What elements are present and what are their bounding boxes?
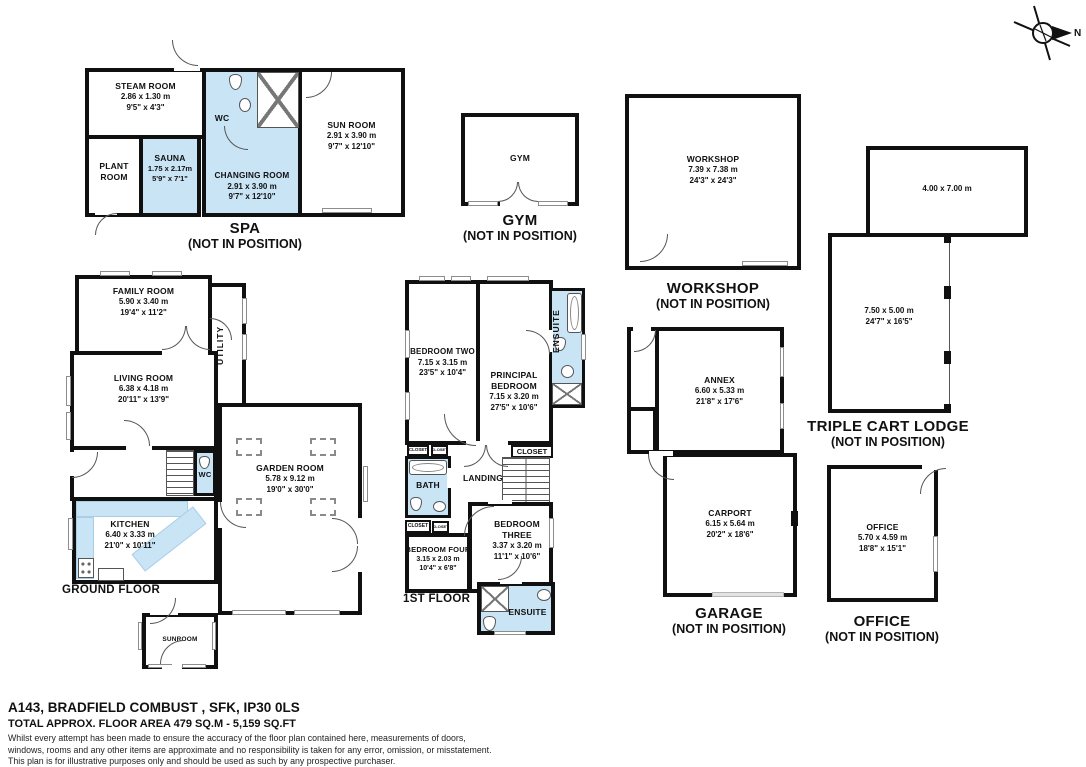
plant-room-label: PLANT ROOM [87,161,141,183]
post [944,404,951,413]
annex-building: ANNEX 6.60 x 5.33 m 21'8" x 17'6" [627,327,787,459]
door-opening [640,261,666,266]
room-dim-ft: 19'4" x 11'2" [85,308,202,319]
closet-label: CLOSET [431,448,448,452]
door-opening [500,580,522,584]
cart-lodge-upper-label: 4.00 x 7.00 m [866,184,1028,195]
room-dim-m: 1.75 x 2.17m [137,164,203,174]
window [487,276,529,281]
gym-title: GYM [451,212,589,229]
spa-title: SPA [115,220,375,237]
room-name: SAUNA [137,153,203,164]
sink-icon [433,501,446,512]
window [780,403,784,429]
window [242,334,247,360]
room-dim-ft: 27'5" x 10'6" [479,403,549,414]
window [742,261,788,266]
gym-room-label: GYM [461,153,579,164]
room-dim-ft: 18'8" x 15'1" [829,544,936,555]
family-room-label: FAMILY ROOM 5.90 x 3.40 m 19'4" x 11'2" [85,286,202,318]
window [419,276,445,281]
office-label: OFFICE 5.70 x 4.59 m 18'8" x 15'1" [829,522,936,554]
room-name: BEDROOM [479,381,549,392]
room-dim-ft: 9'7" x 12'10" [300,142,403,153]
window [405,392,410,420]
spa-wc-label: WC [207,113,237,124]
door-opening [488,500,512,504]
window [322,208,372,213]
room-dim-ft: 9'7" x 12'10" [202,192,302,203]
room-name: LIVING ROOM [85,373,202,384]
carport-label: CARPORT 6.15 x 5.64 m 20'2" x 18'6" [665,508,795,540]
room-name: GYM [461,153,579,164]
kitchen-counter-top [76,501,188,517]
door-opening [174,66,200,71]
room-dim-m: 2.86 x 1.30 m [93,92,198,103]
changing-room-label: CHANGING ROOM 2.91 x 3.90 m 9'7" x 12'10… [202,171,302,203]
bedroom-two-label: BEDROOM TWO 7.15 x 3.15 m 23'5" x 10'4" [405,347,480,379]
window [68,518,73,550]
room-dim-m: 4.00 x 7.00 m [866,184,1028,195]
first-floor-label: 1ST FLOOR [403,593,470,605]
room-name: WC [190,470,220,480]
door-opening [358,518,362,572]
garden-room-label: GARDEN ROOM 5.78 x 9.12 m 19'0" x 30'0" [230,463,350,495]
bathtub-icon [409,460,447,475]
room-dim-m: 6.40 x 3.33 m [70,530,190,541]
room-name: CHANGING ROOM [202,171,302,182]
principal-bedroom [476,280,553,445]
stove-icon [78,558,94,578]
window [152,271,182,276]
closet-label: CLOSET [407,448,429,453]
room-name: LANDING [453,473,513,484]
garage-opening [712,592,784,597]
workshop-note: (NOT IN POSITION) [613,297,813,311]
room-dim-ft: 24'7" x 16'5" [828,317,950,328]
closet-label: CLOSET [511,448,553,456]
room-name: ROOM [87,172,141,183]
room-name: PLANT [87,161,141,172]
window [100,271,130,276]
landing-label: LANDING [453,473,513,484]
room-name: STEAM ROOM [93,81,198,92]
window [933,536,938,572]
closet-label: CLOSET [405,524,431,529]
door-arc [648,454,674,480]
cart-lodge-title: TRIPLE CART LODGE [788,418,988,435]
steam-room-label: STEAM ROOM 2.86 x 1.30 m 9'5" x 4'3" [93,81,198,113]
post [944,286,951,299]
window [232,610,286,615]
window [242,298,247,324]
room-name: BEDROOM FOUR [400,545,476,555]
workshop-building: WORKSHOP 7.39 x 7.38 m 24'3" x 24'3" WOR… [625,90,805,315]
pillar [310,498,336,516]
bathtub-icon [567,293,582,333]
annex-lobby [627,407,657,454]
room-name: ANNEX [655,375,784,386]
pillar [310,438,336,456]
compass: N [1006,2,1086,64]
ground-floor-label: GROUND FLOOR [62,584,160,596]
room-dim-m: 3.37 x 3.20 m [482,541,552,552]
door-opening [447,468,451,488]
room-dim-ft: 5'9" x 7'1" [137,174,203,184]
gym-note: (NOT IN POSITION) [451,229,589,243]
footer: A143, BRADFIELD COMBUST , SFK, IP30 0LS … [8,700,748,767]
room-dim-m: 6.60 x 5.33 m [655,386,784,397]
window [451,276,471,281]
room-name: GARDEN ROOM [230,463,350,474]
room-name: FAMILY ROOM [85,286,202,297]
disclaimer: Whilst every attempt has been made to en… [8,733,748,767]
window [138,622,142,650]
annex-label: ANNEX 6.60 x 5.33 m 21'8" x 17'6" [655,375,784,407]
garage-building: CARPORT 6.15 x 5.64 m 20'2" x 18'6" GARA… [663,453,803,645]
sauna-label: SAUNA 1.75 x 2.17m 5'9" x 7'1" [137,153,203,184]
room-name: ENSUITE [500,607,555,618]
room-dim-ft: 23'5" x 10'4" [405,368,480,379]
floor-plan-page: N STEAM ROOM 2.86 x 1.30 m 9'5" x 4'3" P… [0,0,1086,767]
room-dim-m: 2.91 x 3.90 m [300,131,403,142]
cart-lodge-note: (NOT IN POSITION) [788,435,988,449]
bedroom-four-label: BEDROOM FOUR 3.15 x 2.03 m 10'4" x 6'8" [400,545,476,573]
office-title: OFFICE [802,613,962,630]
workshop-title: WORKSHOP [613,280,813,297]
room-name: BEDROOM TWO [405,347,480,358]
room-name: SUN ROOM [300,120,403,131]
disclaimer-line: Whilst every attempt has been made to en… [8,733,748,745]
sun-room-label: SUN ROOM 2.91 x 3.90 m 9'7" x 12'10" [300,120,403,152]
room-name: WORKSHOP [633,154,793,165]
sink-icon [537,589,551,601]
garage-title: GARAGE [649,605,809,622]
room-dim-ft: 24'3" x 24'3" [633,176,793,187]
window [66,412,71,440]
post [791,511,798,526]
window [294,610,340,615]
room-name: BATH [405,480,451,491]
spa-note: (NOT IN POSITION) [115,237,375,251]
room-dim-ft: 20'11" x 13'9" [85,395,202,406]
room-name: OFFICE [829,522,936,533]
room-dim-m: 2.91 x 3.90 m [202,182,302,193]
room-dim-m: 7.50 x 5.00 m [828,306,950,317]
workshop-label: WORKSHOP 7.39 x 7.38 m 24'3" x 24'3" [633,154,793,186]
spa-building: STEAM ROOM 2.86 x 1.30 m 9'5" x 4'3" PLA… [85,45,415,257]
sink-icon [239,98,251,112]
principal-bedroom-label: PRINCIPAL BEDROOM 7.15 x 3.20 m 27'5" x … [479,370,549,414]
window [538,201,568,206]
room-dim-ft: 10'4" x 6'8" [400,564,476,573]
window [549,518,554,548]
window [66,376,71,406]
room-dim-ft: 19'0" x 30'0" [230,485,350,496]
room-dim-m: 7.15 x 3.20 m [479,392,549,403]
post [944,351,951,364]
room-name: CARPORT [665,508,795,519]
bath-label: BATH [405,480,451,491]
room-dim-m: 6.38 x 4.18 m [85,384,202,395]
ensuite-bottom-label: ENSUITE [500,607,555,618]
room-name: KITCHEN [70,519,190,530]
window [182,664,206,668]
gym-building: GYM GYM (NOT IN POSITION) [461,113,581,245]
disclaimer-line: windows, rooms and any other items are a… [8,745,748,757]
sink-icon [561,365,574,378]
room-dim-m: 5.70 x 4.59 m [829,533,936,544]
post [944,233,951,243]
closet-label: CLOSET [432,525,449,529]
window [494,631,526,635]
room-dim-m: 5.90 x 3.40 m [85,297,202,308]
office-note: (NOT IN POSITION) [802,630,962,644]
disclaimer-line: This plan is for illustrative purposes o… [8,756,748,767]
window [581,334,586,360]
window [405,330,410,358]
room-name: WC [207,113,237,124]
room-name: PRINCIPAL [479,370,549,381]
cart-lodge-building: 4.00 x 7.00 m 7.50 x 5.00 m 24'7" x 16'5… [828,146,1028,456]
window [212,622,216,650]
door-opening [162,665,182,669]
wc-label: WC [190,470,220,480]
room-dim-m: 3.15 x 2.03 m [400,555,476,564]
door-opening [500,201,538,206]
room-dim-ft: 21'8" x 17'6" [655,397,784,408]
room-dim-ft: 21'0" x 10'11" [70,541,190,552]
garage-note: (NOT IN POSITION) [649,622,809,636]
door-opening [126,446,152,450]
room-dim-m: 5.78 x 9.12 m [230,474,350,485]
door-opening [162,351,208,355]
compass-north-label: N [1074,28,1081,39]
kitchen-sink-icon [98,568,124,581]
shower-icon [257,72,299,128]
kitchen-label: KITCHEN 6.40 x 3.33 m 21'0" x 10'11" [70,519,190,551]
window [468,201,498,206]
pillar [236,438,262,456]
ensuite-top-label: ENSUITE [551,301,569,361]
cart-lodge-lower-label: 7.50 x 5.00 m 24'7" x 16'5" [828,306,950,327]
property-address: A143, BRADFIELD COMBUST , SFK, IP30 0LS [8,700,748,715]
window [780,347,784,377]
room-dim-m: 7.39 x 7.38 m [633,165,793,176]
window [363,466,368,502]
room-dim-m: 7.15 x 3.15 m [405,358,480,369]
shower-icon [552,383,582,405]
room-dim-m: 6.15 x 5.64 m [665,519,795,530]
room-dim-ft: 9'5" x 4'3" [93,103,198,114]
room-dim-ft: 20'2" x 18'6" [665,530,795,541]
living-room-label: LIVING ROOM 6.38 x 4.18 m 20'11" x 13'9" [85,373,202,405]
total-floor-area: TOTAL APPROX. FLOOR AREA 479 SQ.M - 5,15… [8,718,748,730]
